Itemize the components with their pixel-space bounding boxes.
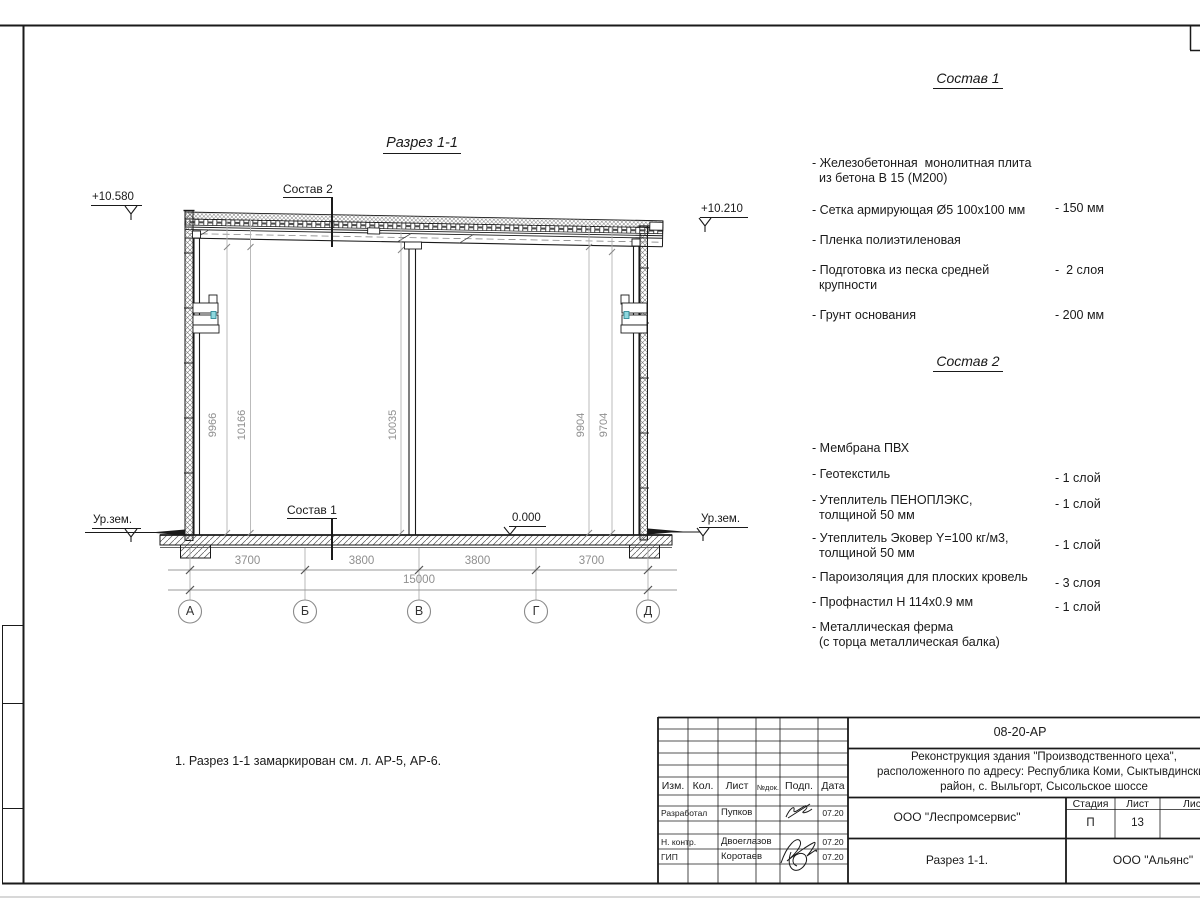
roof (185, 212, 663, 247)
elevation-zero: 0.000 (512, 512, 541, 524)
list-item: - Металлическая ферма(с торца металличес… (812, 590, 1000, 680)
ground-level-label-left: Ур.зем. (93, 514, 132, 526)
elevation-top-right: +10.210 (701, 203, 743, 215)
col-header-izm: Изм. (658, 780, 688, 793)
wall-left (184, 211, 195, 541)
foundation-right (630, 545, 660, 558)
dim-height-4: 9904 (575, 397, 589, 453)
dim-height-5: 9704 (598, 397, 612, 453)
row-role-gip: ГИП (661, 852, 678, 862)
signature-control (781, 840, 817, 871)
contractor-name: ООО "Альянс" (1066, 853, 1200, 867)
sheet-note: 1. Разрез 1-1 замаркирован см. л. АР-5, … (175, 754, 441, 768)
axis-label-d: Д (637, 604, 659, 618)
bracket-left (193, 295, 219, 333)
col-header-data: Дата (818, 780, 848, 793)
row-date-developer: 07.20 (818, 808, 848, 818)
elevation-mark-ground-right (697, 528, 748, 542)
section-title: Разрез 1-1 (352, 135, 492, 151)
row-date-gip: 07.20 (818, 852, 848, 862)
column-left (193, 231, 201, 535)
axis-label-g: Г (525, 604, 547, 618)
floor-slab (160, 535, 672, 548)
elevation-mark-ground-left (92, 529, 141, 543)
dim-segment-4: 3700 (569, 555, 614, 567)
axis-label-a: А (179, 604, 201, 618)
dim-segment-2: 3800 (339, 555, 384, 567)
roof-top-element (368, 228, 380, 234)
list-label: Лист (1115, 798, 1160, 811)
row-role-control: Н. контр. (661, 837, 696, 847)
dim-height-2: 10166 (236, 397, 250, 453)
vertical-dim-lines (224, 219, 615, 536)
elevation-mark-top-right (699, 218, 748, 233)
sheet-name: Разрез 1-1. (848, 853, 1066, 867)
left-margin-boxes (2, 625, 23, 883)
dim-height-1: 9966 (207, 397, 221, 453)
listov-label: Листов (1160, 798, 1200, 811)
elevation-mark-zero (504, 527, 546, 535)
ground-line-right (648, 529, 700, 535)
roof-end-element (650, 222, 663, 230)
axis-label-v: В (408, 604, 430, 618)
elevation-top-left: +10.580 (92, 191, 134, 203)
org-name: ООО "Леспромсервис" (848, 810, 1066, 824)
col-header-doc: №док. (756, 783, 780, 792)
col-header-kol: Кол. (688, 780, 718, 793)
dim-total: 15000 (396, 574, 442, 586)
col-header-list: Лист (718, 780, 756, 793)
project-line-1: Реконструкция здания "Производственного … (848, 751, 1200, 763)
row-name-gip: Коротаев (721, 851, 762, 862)
foundation-left (181, 545, 211, 558)
column-middle (405, 242, 422, 535)
dim-segment-3: 3800 (455, 555, 500, 567)
sostav1-title: Состав 1 (800, 70, 1136, 86)
sostav2-title: Состав 2 (800, 353, 1136, 369)
axis-label-b: Б (294, 604, 316, 618)
col-header-podp: Подп. (780, 780, 818, 793)
sheet-number: 13 (1115, 817, 1160, 829)
project-line-2: расположенного по адресу: Республика Ком… (848, 766, 1200, 778)
doc-number: 08-20-АР (848, 725, 1192, 739)
list-item: - Грунт основания (812, 278, 916, 353)
elevation-mark-top-left (91, 206, 142, 221)
dim-segment-1: 3700 (225, 555, 270, 567)
drawing-sheet: Разрез 1-1 Состав 2 Состав 1 +10.580 +10… (0, 0, 1200, 900)
label-sostav2: Состав 2 (283, 182, 332, 196)
row-role-developer: Разработал (661, 808, 707, 818)
stage-value: П (1066, 817, 1115, 829)
project-line-3: район, с. Выльгорт, Сысольское шоссе (848, 781, 1200, 793)
ground-level-label-right: Ур.зем. (701, 513, 740, 525)
row-name-developer: Пупков (721, 807, 752, 818)
column-right (632, 239, 640, 535)
bracket-accent (211, 312, 216, 319)
label-sostav1: Состав 1 (287, 503, 332, 517)
wall-right (639, 226, 650, 540)
row-date-control: 07.20 (818, 837, 848, 847)
bracket-accent (624, 312, 629, 319)
row-name-control: Двоеглазов (721, 836, 772, 847)
stage-label: Стадия (1066, 798, 1115, 811)
dim-height-3: 10035 (387, 397, 401, 453)
corner-box (1190, 25, 1200, 51)
